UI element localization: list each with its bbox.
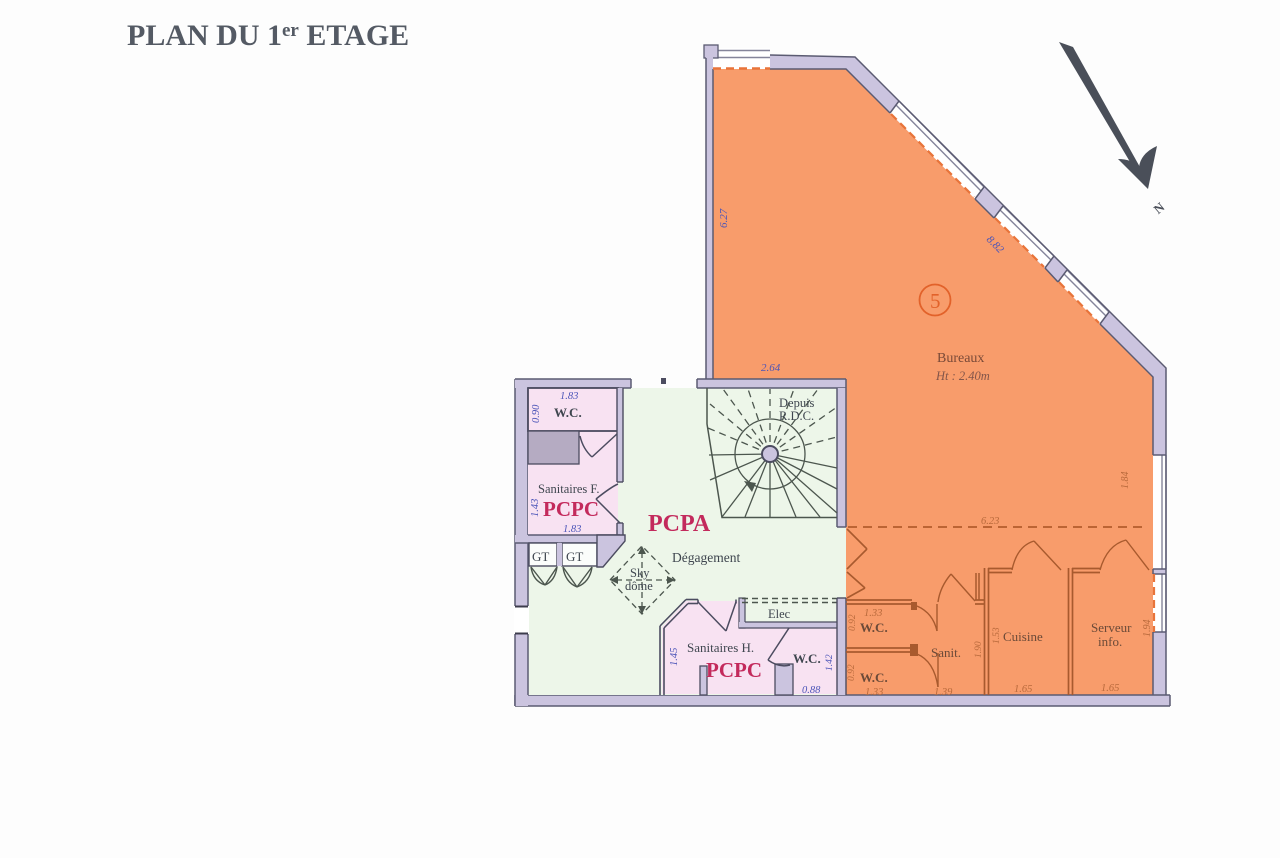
svg-text:info.: info. xyxy=(1098,634,1122,649)
svg-text:6.27: 6.27 xyxy=(718,208,730,228)
svg-text:6.23: 6.23 xyxy=(981,516,999,527)
svg-text:GT: GT xyxy=(532,549,549,564)
svg-text:1.42: 1.42 xyxy=(825,654,835,671)
svg-text:0.92: 0.92 xyxy=(848,614,858,631)
svg-text:0.92: 0.92 xyxy=(847,664,857,681)
svg-text:Depuis: Depuis xyxy=(779,396,815,410)
svg-text:Bureaux: Bureaux xyxy=(937,351,984,366)
svg-text:dôme: dôme xyxy=(625,579,653,593)
svg-text:1.33: 1.33 xyxy=(865,687,883,698)
svg-text:2.64: 2.64 xyxy=(761,362,781,374)
svg-text:Sky: Sky xyxy=(630,566,650,580)
svg-text:W.C.: W.C. xyxy=(793,651,821,666)
svg-text:1.43: 1.43 xyxy=(530,499,541,517)
svg-text:Sanitaires F.: Sanitaires F. xyxy=(538,482,600,496)
svg-text:Dégagement: Dégagement xyxy=(672,550,740,565)
svg-text:PLAN DU 1er ETAGE: PLAN DU 1er ETAGE xyxy=(127,19,409,52)
svg-text:1.90: 1.90 xyxy=(974,641,984,658)
svg-text:R.D.C.: R.D.C. xyxy=(779,409,814,423)
svg-text:0.88: 0.88 xyxy=(802,685,821,696)
svg-text:PCPA: PCPA xyxy=(648,511,711,537)
svg-text:1.84: 1.84 xyxy=(1120,472,1131,490)
svg-text:Ht : 2.40m: Ht : 2.40m xyxy=(935,369,990,383)
svg-text:1.39: 1.39 xyxy=(934,687,953,698)
svg-text:Elec: Elec xyxy=(768,607,791,621)
svg-text:1.94: 1.94 xyxy=(1142,620,1153,638)
svg-text:1.83: 1.83 xyxy=(563,524,581,535)
svg-text:W.C.: W.C. xyxy=(860,620,888,635)
svg-text:Sanit.: Sanit. xyxy=(931,645,961,660)
svg-text:W.C.: W.C. xyxy=(860,670,888,685)
svg-text:1.65: 1.65 xyxy=(1014,684,1032,695)
svg-text:Sanitaires H.: Sanitaires H. xyxy=(687,640,754,655)
svg-text:GT: GT xyxy=(566,549,583,564)
svg-text:0.90: 0.90 xyxy=(531,404,542,423)
svg-text:Cuisine: Cuisine xyxy=(1003,629,1043,644)
svg-text:5: 5 xyxy=(930,289,941,313)
svg-text:PCPC: PCPC xyxy=(706,658,762,682)
svg-text:Serveur: Serveur xyxy=(1091,620,1132,635)
svg-text:1.53: 1.53 xyxy=(992,627,1002,644)
svg-text:W.C.: W.C. xyxy=(554,405,582,420)
svg-text:1.45: 1.45 xyxy=(669,648,680,666)
svg-text:1.83: 1.83 xyxy=(560,391,578,402)
svg-text:1.65: 1.65 xyxy=(1101,683,1119,694)
svg-text:PCPC: PCPC xyxy=(543,497,599,521)
svg-text:1.33: 1.33 xyxy=(864,608,882,619)
